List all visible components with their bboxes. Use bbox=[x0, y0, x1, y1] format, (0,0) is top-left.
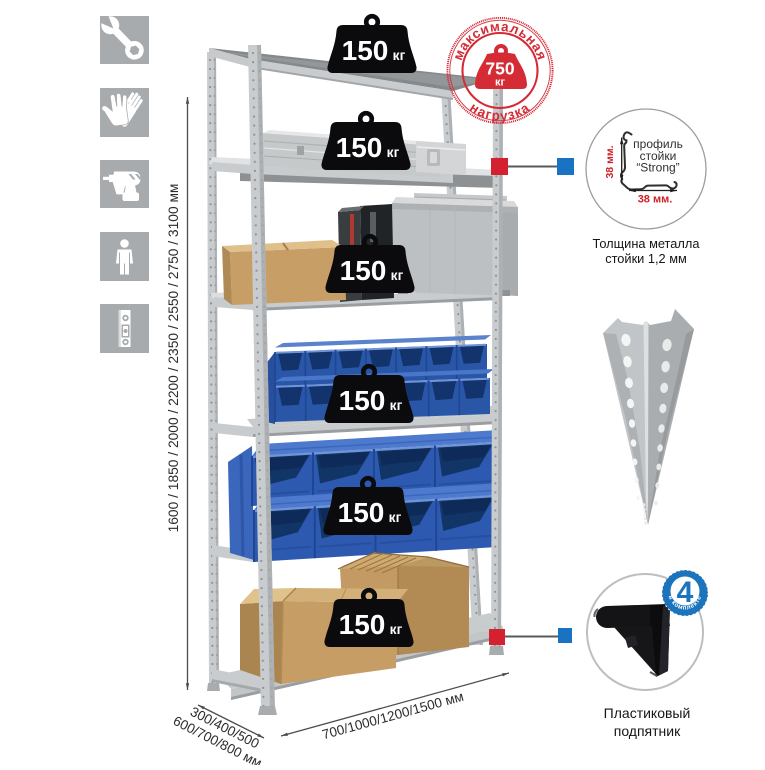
svg-text:стойки 1,2 мм: стойки 1,2 мм bbox=[605, 251, 687, 266]
svg-text:“Strong”: “Strong” bbox=[636, 161, 679, 175]
svg-text:1600 / 1850 / 2000 / 2200 / 23: 1600 / 1850 / 2000 / 2200 / 2350 / 2550 … bbox=[166, 184, 181, 533]
svg-text:150: 150 bbox=[342, 35, 389, 66]
svg-text:кг: кг bbox=[390, 622, 403, 637]
svg-text:кг: кг bbox=[387, 145, 400, 160]
svg-text:кг: кг bbox=[495, 77, 506, 89]
svg-text:кг: кг bbox=[391, 268, 404, 283]
svg-text:кг: кг bbox=[390, 398, 403, 413]
svg-text:38 мм.: 38 мм. bbox=[604, 145, 616, 178]
svg-text:кг: кг bbox=[393, 48, 406, 63]
svg-text:Пластиковый: Пластиковый bbox=[604, 705, 691, 721]
svg-text:подпятник: подпятник bbox=[614, 723, 681, 739]
svg-text:150: 150 bbox=[339, 609, 386, 640]
svg-text:150: 150 bbox=[338, 497, 385, 528]
svg-text:38 мм.: 38 мм. bbox=[638, 194, 673, 206]
svg-text:кг: кг bbox=[389, 510, 402, 525]
svg-text:150: 150 bbox=[339, 385, 386, 416]
svg-text:150: 150 bbox=[336, 132, 383, 163]
svg-text:750: 750 bbox=[485, 59, 514, 79]
svg-text:150: 150 bbox=[340, 255, 387, 286]
svg-text:Толщина металла: Толщина металла bbox=[593, 236, 701, 251]
